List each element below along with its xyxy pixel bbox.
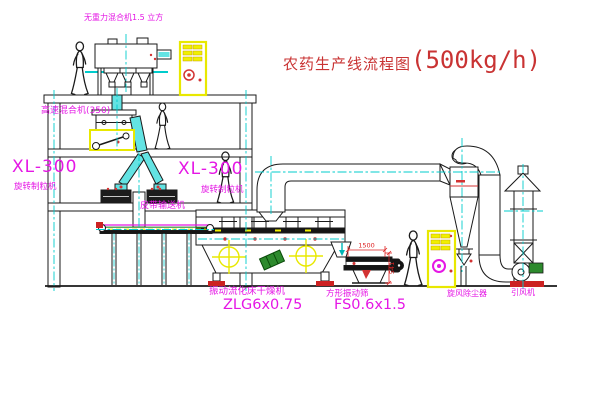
flow-diagram: 1500 541 农药生产线流程图 (500kg/h) 无重力混合机1.5 立方… [0,0,600,403]
label-granulator-mid-name: 旋转制粒机 [201,186,244,195]
label-granulator-left-model: XL-300 [12,159,77,176]
high-speed-mixer [90,110,147,152]
granulator-left-machine [101,188,131,203]
label-granulator-mid-model: XL-300 [178,161,243,178]
label-fan: 引风机 [511,289,535,297]
control-cabinet-top [180,42,206,95]
label-dryer-model: ZLG6x0.75 [223,298,302,313]
title-capacity: (500kg/h) [411,46,541,74]
person-figure [71,42,88,94]
label-gravity-free-mixer: 无重力混合机1.5 立方 [84,14,163,22]
dim-sifter-length: 1500 [358,242,375,250]
label-sifter-model: FS0.6x1.5 [334,298,406,313]
belt-conveyor [96,222,214,285]
label-cyclone: 旋风除尘器 [447,290,487,298]
exhaust-duct [257,164,440,221]
person-figure [405,231,422,286]
label-dryer-name: 振动流化床干燥机 [209,287,285,297]
exhaust-stack [505,166,540,263]
label-granulator-left-name: 旋转制粒机 [14,183,57,192]
page-title: 农药生产线流程图 (500kg/h) [283,46,541,74]
control-cabinet-right [428,231,455,287]
label-high-speed-mixer: 高速混合机(350) [41,107,110,116]
label-belt-conveyor: 皮带输送机 [140,202,185,211]
person-figure [155,103,170,149]
title-text: 农药生产线流程图 [283,46,411,74]
induced-draft-fan [510,263,544,287]
dim-sifter-height: 541 [388,262,396,274]
y-chute [115,152,166,190]
